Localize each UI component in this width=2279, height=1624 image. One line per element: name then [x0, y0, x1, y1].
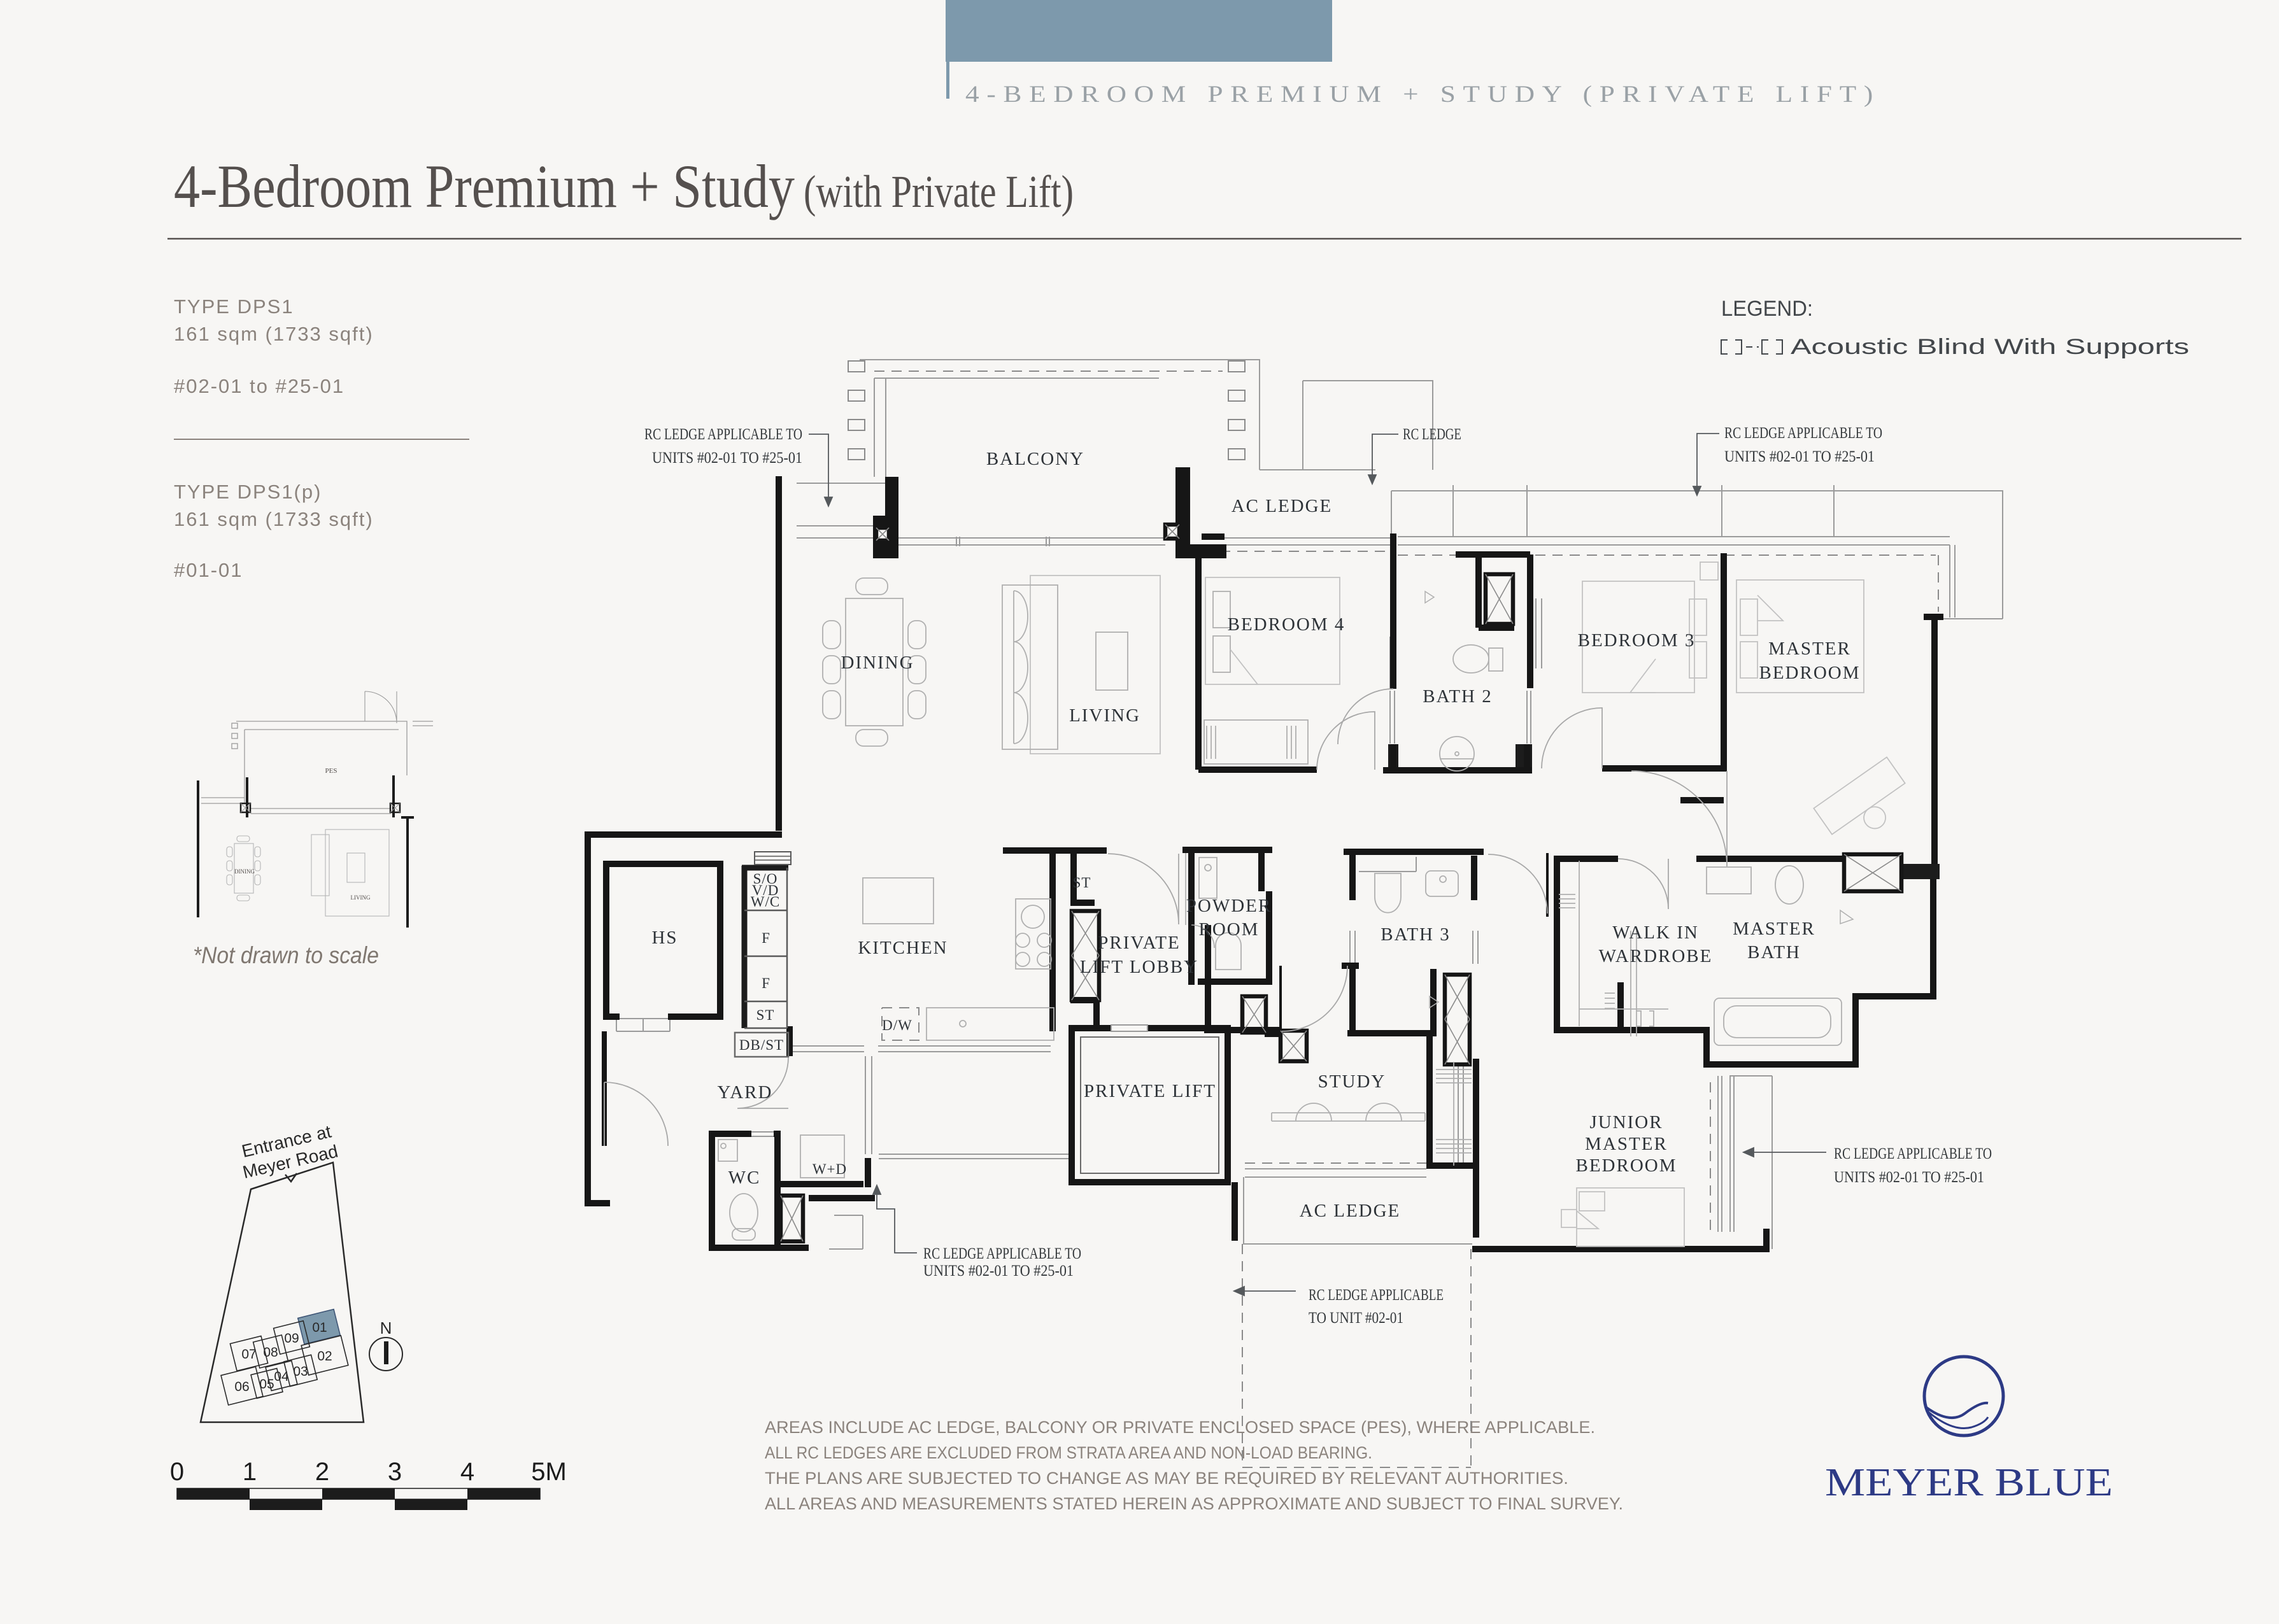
svg-text:MASTER: MASTER — [1585, 1134, 1668, 1154]
svg-text:THE PLANS ARE SUBJECTED TO CHA: THE PLANS ARE SUBJECTED TO CHANGE AS MAY… — [765, 1469, 1568, 1488]
svg-text:BATH 2: BATH 2 — [1423, 686, 1492, 707]
svg-text:MEYER BLUE: MEYER BLUE — [1825, 1461, 2113, 1504]
svg-text:UNITS #02-01 TO #25-01: UNITS #02-01 TO #25-01 — [652, 449, 802, 467]
svg-text:09: 09 — [284, 1331, 299, 1346]
svg-text:MASTER: MASTER — [1733, 919, 1815, 939]
svg-text:ST: ST — [756, 1007, 775, 1023]
svg-text:F: F — [762, 930, 770, 946]
svg-text:BATH 3: BATH 3 — [1381, 924, 1450, 945]
svg-text:08: 08 — [263, 1345, 278, 1360]
svg-text:POWDER: POWDER — [1186, 896, 1272, 916]
svg-text:*Not drawn to scale: *Not drawn to scale — [193, 942, 379, 968]
svg-text:3: 3 — [388, 1458, 402, 1486]
svg-text:4-BEDROOM PREMIUM + STUDY (PRI: 4-BEDROOM PREMIUM + STUDY (PRIVATE LIFT) — [965, 81, 1880, 108]
svg-text:TYPE DPS1: TYPE DPS1 — [174, 295, 294, 318]
svg-text:ALL AREAS AND MEASUREMENTS STA: ALL AREAS AND MEASUREMENTS STATED HEREIN… — [765, 1494, 1623, 1513]
svg-text:BATH: BATH — [1747, 942, 1801, 963]
svg-text:161 sqm (1733 sqft): 161 sqm (1733 sqft) — [174, 508, 374, 530]
svg-text:LEGEND:: LEGEND: — [1721, 297, 1813, 321]
svg-text:Acoustic Blind With Supports: Acoustic Blind With Supports — [1791, 335, 2189, 359]
svg-text:1: 1 — [243, 1458, 257, 1486]
svg-text:TO UNIT #02-01: TO UNIT #02-01 — [1309, 1310, 1403, 1327]
svg-text:PES: PES — [325, 767, 337, 775]
svg-text:HS: HS — [651, 928, 678, 948]
svg-text:ST: ST — [1073, 875, 1091, 891]
svg-text:DINING: DINING — [234, 868, 255, 875]
svg-text:W/C: W/C — [751, 894, 780, 910]
svg-text:D/W: D/W — [882, 1017, 912, 1033]
svg-text:(with Private Lift): (with Private Lift) — [804, 166, 1074, 217]
svg-text:DINING: DINING — [841, 653, 914, 673]
svg-text:UNITS #02-01 TO #25-01: UNITS #02-01 TO #25-01 — [1834, 1169, 1984, 1186]
svg-text:JUNIOR: JUNIOR — [1589, 1112, 1663, 1133]
svg-text:BEDROOM 4: BEDROOM 4 — [1228, 614, 1345, 635]
svg-text:WC: WC — [728, 1168, 761, 1188]
svg-text:WALK IN: WALK IN — [1612, 922, 1699, 943]
svg-text:KITCHEN: KITCHEN — [858, 938, 948, 958]
svg-text:RC LEDGE APPLICABLE TO: RC LEDGE APPLICABLE TO — [923, 1245, 1081, 1262]
svg-text:AC LEDGE: AC LEDGE — [1300, 1201, 1401, 1221]
svg-text:06: 06 — [234, 1380, 249, 1394]
svg-text:AC LEDGE: AC LEDGE — [1232, 496, 1333, 516]
svg-text:N: N — [380, 1318, 392, 1338]
svg-text:05: 05 — [259, 1377, 274, 1392]
svg-text:STUDY: STUDY — [1318, 1071, 1386, 1092]
svg-text:DB/ST: DB/ST — [739, 1037, 784, 1053]
svg-text:UNITS #02-01 TO #25-01: UNITS #02-01 TO #25-01 — [1724, 448, 1875, 465]
svg-text:04: 04 — [274, 1369, 289, 1384]
svg-text:F: F — [762, 975, 770, 991]
svg-text:RC LEDGE APPLICABLE TO: RC LEDGE APPLICABLE TO — [1834, 1145, 1992, 1162]
svg-text:#02-01 to #25-01: #02-01 to #25-01 — [174, 375, 344, 397]
svg-text:UNITS #02-01 TO #25-01: UNITS #02-01 TO #25-01 — [923, 1262, 1074, 1280]
svg-text:TYPE DPS1(p): TYPE DPS1(p) — [174, 481, 322, 503]
svg-text:BEDROOM 3: BEDROOM 3 — [1578, 630, 1696, 651]
svg-text:5M: 5M — [531, 1458, 567, 1486]
svg-text:LIVING: LIVING — [1069, 705, 1140, 726]
svg-text:03: 03 — [293, 1364, 308, 1379]
svg-text:RC LEDGE APPLICABLE TO: RC LEDGE APPLICABLE TO — [1724, 425, 1882, 442]
svg-text:0: 0 — [170, 1458, 184, 1486]
svg-text:BALCONY: BALCONY — [986, 449, 1084, 469]
svg-text:BEDROOM: BEDROOM — [1575, 1155, 1677, 1176]
svg-text:W+D: W+D — [813, 1161, 847, 1177]
svg-text:#01-01: #01-01 — [174, 559, 243, 581]
svg-text:161 sqm (1733 sqft): 161 sqm (1733 sqft) — [174, 323, 374, 345]
svg-text:LIFT LOBBY: LIFT LOBBY — [1080, 957, 1198, 977]
svg-text:BEDROOM: BEDROOM — [1759, 663, 1860, 683]
svg-text:ALL RC LEDGES ARE EXCLUDED FRO: ALL RC LEDGES ARE EXCLUDED FROM STRATA A… — [765, 1443, 1372, 1462]
svg-text:MASTER: MASTER — [1768, 639, 1851, 659]
svg-text:4-Bedroom Premium + Study: 4-Bedroom Premium + Study — [174, 152, 795, 220]
svg-text:4: 4 — [460, 1458, 474, 1486]
svg-text:YARD: YARD — [718, 1082, 773, 1103]
svg-text:LIVING: LIVING — [351, 894, 371, 901]
svg-text:RC LEDGE APPLICABLE: RC LEDGE APPLICABLE — [1309, 1287, 1444, 1304]
svg-text:02: 02 — [317, 1349, 332, 1364]
svg-text:01: 01 — [312, 1320, 327, 1335]
svg-text:PRIVATE LIFT: PRIVATE LIFT — [1084, 1081, 1216, 1101]
svg-text:ROOM: ROOM — [1198, 919, 1259, 940]
svg-text:07: 07 — [241, 1347, 256, 1362]
svg-text:RC LEDGE APPLICABLE TO: RC LEDGE APPLICABLE TO — [644, 426, 802, 443]
svg-text:WARDROBE: WARDROBE — [1599, 946, 1713, 966]
svg-text:2: 2 — [315, 1458, 329, 1486]
svg-text:PRIVATE: PRIVATE — [1098, 933, 1181, 953]
svg-text:RC LEDGE: RC LEDGE — [1403, 426, 1461, 443]
